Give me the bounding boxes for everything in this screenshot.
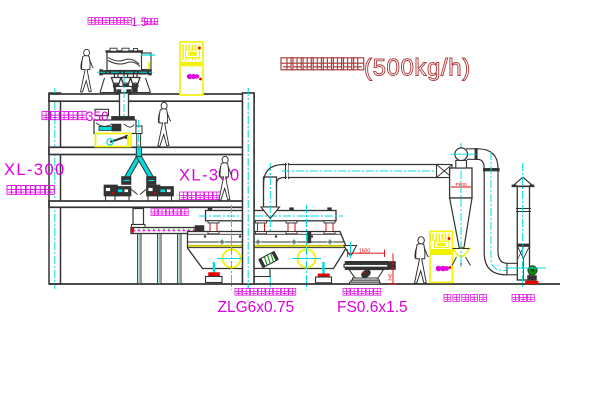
svg-text:(500kg/h): (500kg/h): [364, 55, 471, 82]
svg-text:1500: 1500: [359, 249, 370, 255]
svg-text:350: 350: [86, 109, 109, 124]
svg-text:345: 345: [388, 273, 393, 281]
svg-text:ZLG6x0.75: ZLG6x0.75: [218, 299, 295, 316]
svg-text:FS0.6x1.5: FS0.6x1.5: [337, 299, 408, 316]
svg-text:XL-300: XL-300: [4, 161, 66, 179]
svg-text:XL-300: XL-300: [179, 167, 241, 185]
